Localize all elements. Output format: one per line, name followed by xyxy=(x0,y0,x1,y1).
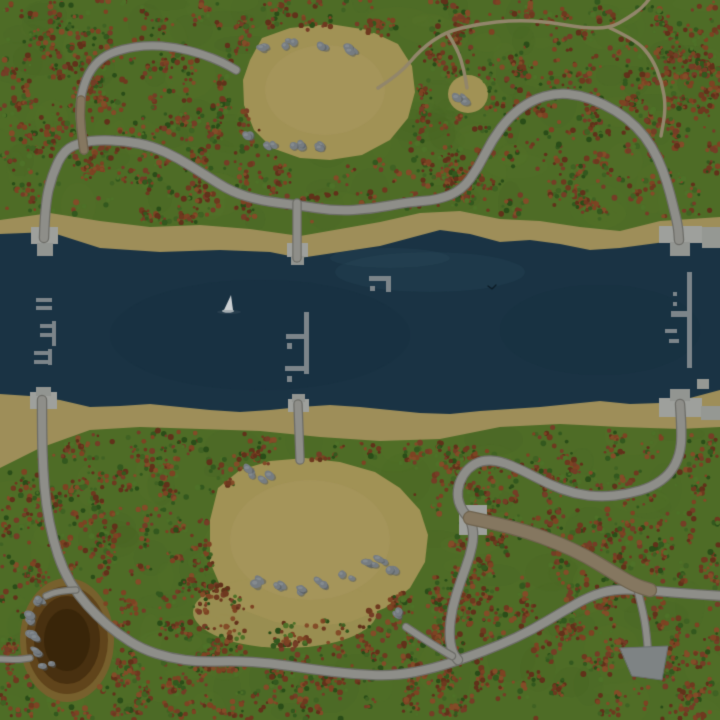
map-canvas xyxy=(0,0,720,720)
level-map-screenshot xyxy=(0,0,720,720)
